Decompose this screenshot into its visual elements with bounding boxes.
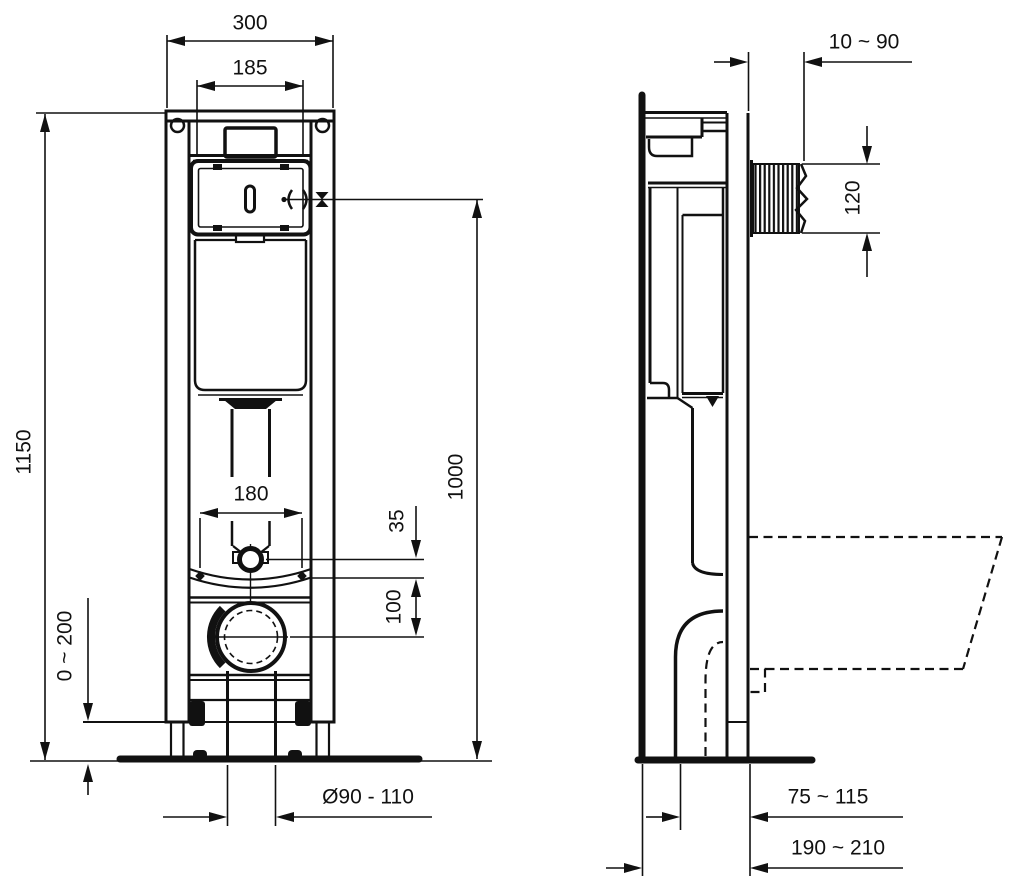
dim-label-fixing-bolt-spacing: 180 xyxy=(233,483,268,506)
front-view: 300 185 1150 1000 xyxy=(13,12,493,827)
dimension-inlet-outlet-gap: 100 xyxy=(383,579,422,636)
dim-label-drain-diameter: Ø90 - 110 xyxy=(322,786,414,809)
dim-label-frame-width: 300 xyxy=(232,12,267,35)
flush-pipe-front xyxy=(219,400,282,554)
flush-rod-slot xyxy=(246,186,255,212)
flush-pipe-side xyxy=(676,398,724,757)
dim-label-wall-finish-range: 10 ~ 90 xyxy=(829,31,900,54)
technical-drawing-page: 300 185 1150 1000 xyxy=(0,0,1024,889)
dim-label-outlet-depth: 75 ~ 115 xyxy=(788,786,869,809)
dim-label-foot-adjustment: 0 ~ 200 xyxy=(54,611,77,682)
wc-bowl-outline xyxy=(749,537,1002,692)
flush-plate-sleeve xyxy=(752,160,808,237)
dim-label-inlet-outlet-gap: 100 xyxy=(383,589,406,624)
dimension-sleeve-height: 120 xyxy=(802,126,880,277)
dim-label-sleeve-height: 120 xyxy=(842,180,865,215)
dim-label-flush-line-height: 1000 xyxy=(445,454,468,501)
dim-label-opening-width: 185 xyxy=(232,57,267,80)
foot-bracket-right xyxy=(295,701,311,726)
dimension-foot-adjustment: 0 ~ 200 xyxy=(54,598,94,795)
fill-valve-cover xyxy=(225,128,276,157)
dimension-flush-line-height: 1000 xyxy=(445,200,483,759)
dimension-drain-diameter: Ø90 - 110 xyxy=(163,765,432,826)
cistern-side xyxy=(646,118,727,407)
side-view: 10 ~ 90 120 75 ~ 115 190 ~ 210 xyxy=(606,31,1002,877)
foot-bracket-left xyxy=(189,701,205,726)
floor-line-front xyxy=(30,759,492,761)
dimension-frame-depth: 190 ~ 210 xyxy=(606,764,903,876)
wc-frame-installation-drawing: 300 185 1150 1000 xyxy=(0,0,1024,889)
dimension-frame-height: 1150 xyxy=(13,113,167,760)
dim-label-frame-depth: 190 ~ 210 xyxy=(791,837,885,860)
dimension-wall-finish-range: 10 ~ 90 xyxy=(714,31,912,162)
dim-label-inlet-offset: 35 xyxy=(386,509,409,532)
dim-label-frame-height: 1150 xyxy=(13,429,36,474)
hidden-drain-pipe xyxy=(706,642,724,756)
access-panel xyxy=(191,161,311,235)
mounting-frame-side xyxy=(645,113,748,758)
